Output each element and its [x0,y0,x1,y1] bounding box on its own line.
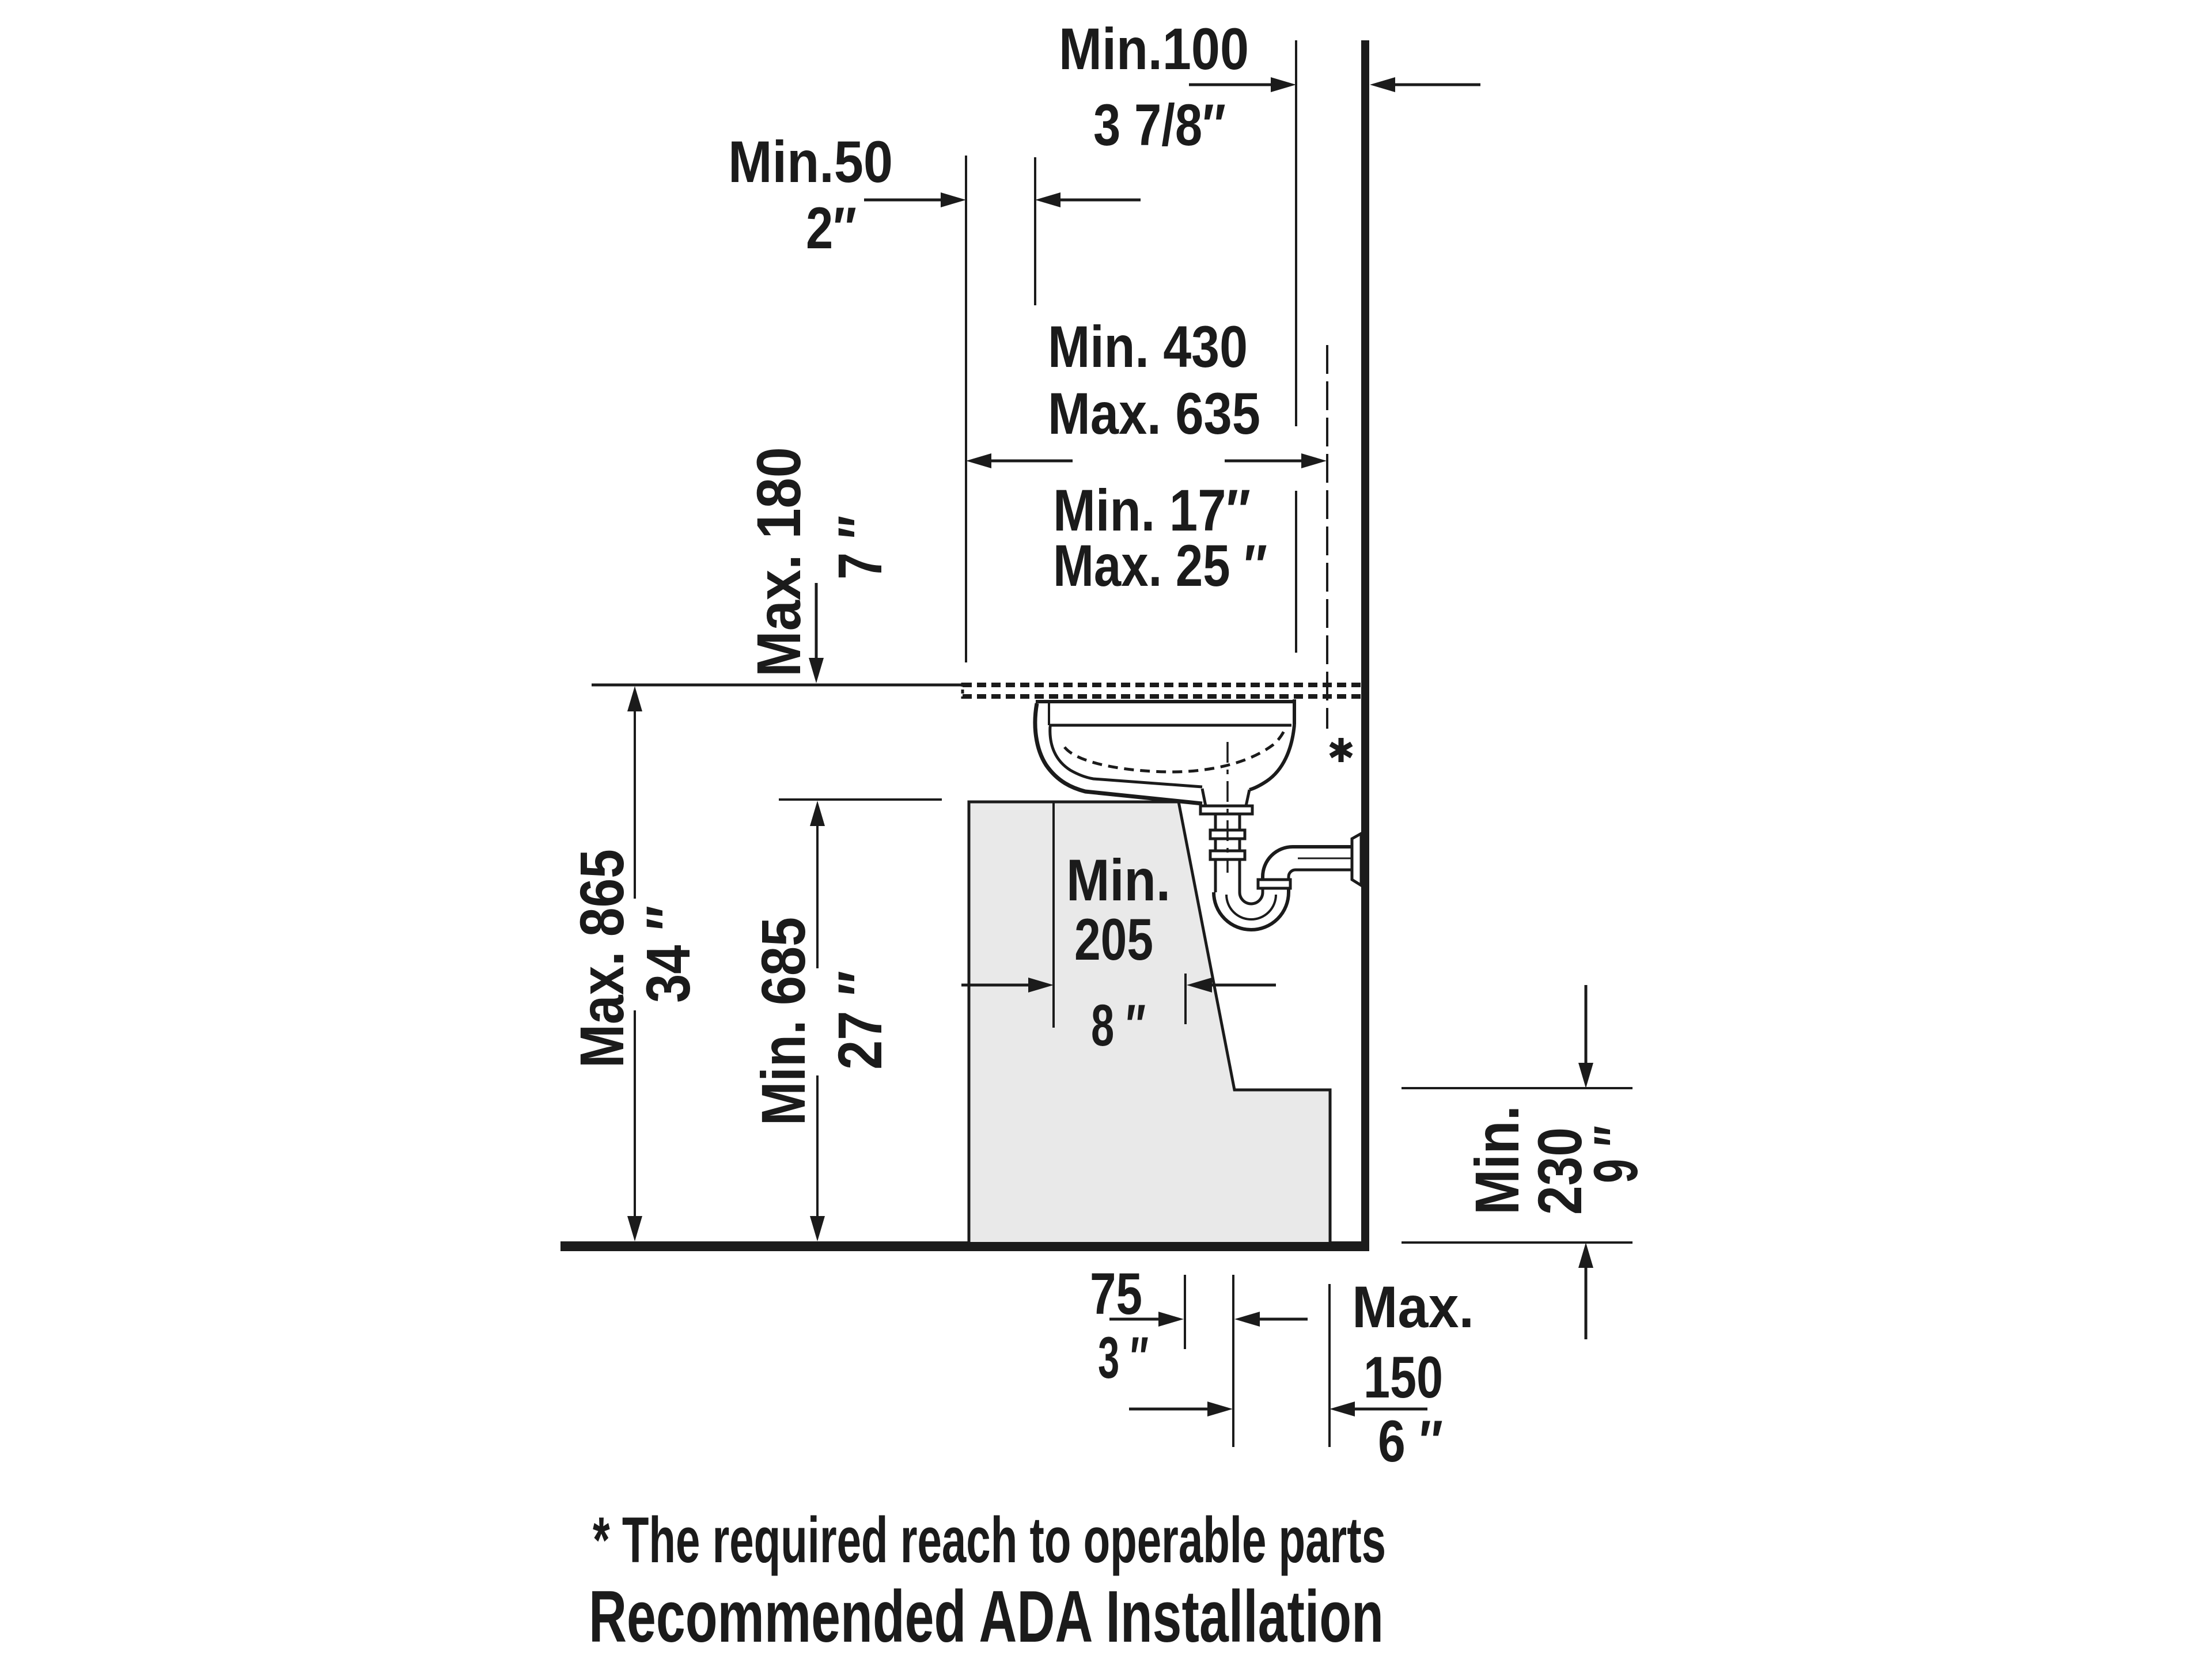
svg-text:8 ″: 8 ″ [1091,993,1146,1058]
svg-text:Max. 180: Max. 180 [744,447,813,677]
svg-text:75: 75 [1090,1261,1142,1327]
svg-text:3 ″: 3 ″ [1098,1325,1149,1391]
svg-text:Min.100: Min.100 [1059,16,1249,82]
svg-text:* The required reach to operab: * The required reach to operable parts [593,1504,1386,1576]
svg-text:Min.50: Min.50 [728,129,893,195]
svg-text:150: 150 [1363,1344,1443,1410]
svg-text:Min.: Min. [1462,1105,1532,1215]
svg-text:6 ″: 6 ″ [1378,1408,1443,1474]
svg-text:2″: 2″ [806,195,857,261]
svg-text:205: 205 [1074,907,1153,972]
svg-text:Max. 25 ″: Max. 25 ″ [1053,533,1267,599]
svg-text:3 7/8″: 3 7/8″ [1093,92,1226,158]
svg-text:Min.: Min. [1066,847,1171,913]
svg-text:Recommended ADA Installation: Recommended ADA Installation [589,1575,1384,1657]
svg-text:Min. 430: Min. 430 [1048,314,1248,380]
svg-text:Max. 635: Max. 635 [1048,381,1260,446]
svg-text:34 ″: 34 ″ [633,906,703,1003]
svg-text:9 ″: 9 ″ [1581,1126,1650,1183]
svg-text:27 ″: 27 ″ [825,971,895,1070]
svg-text:Max. 865: Max. 865 [567,849,637,1068]
svg-text:7 ″: 7 ″ [825,516,895,579]
svg-text:Min. 685: Min. 685 [748,917,818,1126]
svg-text:Max.: Max. [1352,1274,1474,1340]
